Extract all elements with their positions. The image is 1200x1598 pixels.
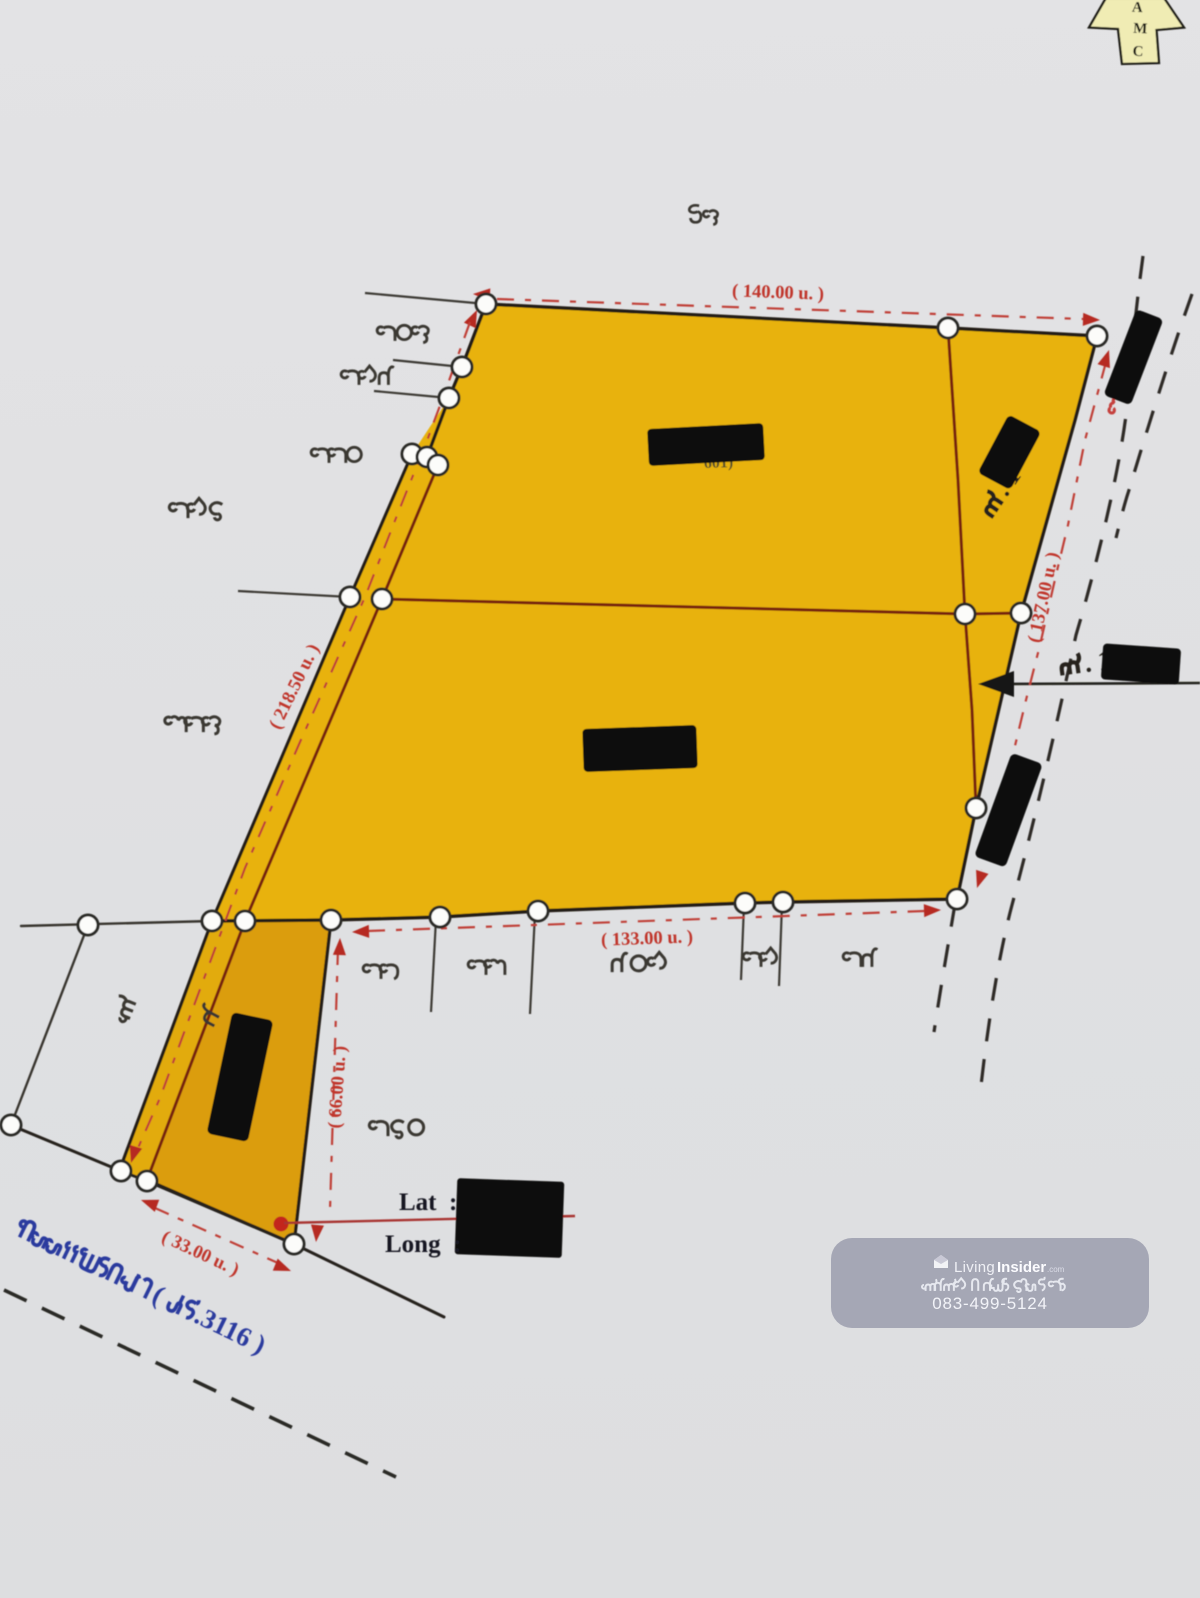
svg-text:Lat :: Lat : [399, 1189, 457, 1216]
svg-text:.3116 ): .3116 ) [190, 1300, 271, 1360]
svg-text:M: M [1133, 21, 1148, 38]
svg-text:C: C [1132, 44, 1144, 61]
svg-text:Living: Living [954, 1259, 995, 1276]
svg-text:( 133.00 u. ): ( 133.00 u. ) [601, 927, 694, 950]
svg-text:( 66.00 u. ): ( 66.00 u. ) [325, 1045, 351, 1129]
svg-text:.com: .com [1047, 1265, 1065, 1274]
svg-text:A: A [1132, 0, 1144, 16]
svg-text:Long :: Long : [385, 1231, 461, 1258]
svg-text:( 33.00 u. ): ( 33.00 u. ) [158, 1227, 241, 1280]
svg-text:( 140.00 u. ): ( 140.00 u. ) [732, 281, 825, 304]
svg-text:083-499-5124: 083-499-5124 [932, 1294, 1047, 1313]
svg-text:Insider: Insider [997, 1259, 1046, 1276]
